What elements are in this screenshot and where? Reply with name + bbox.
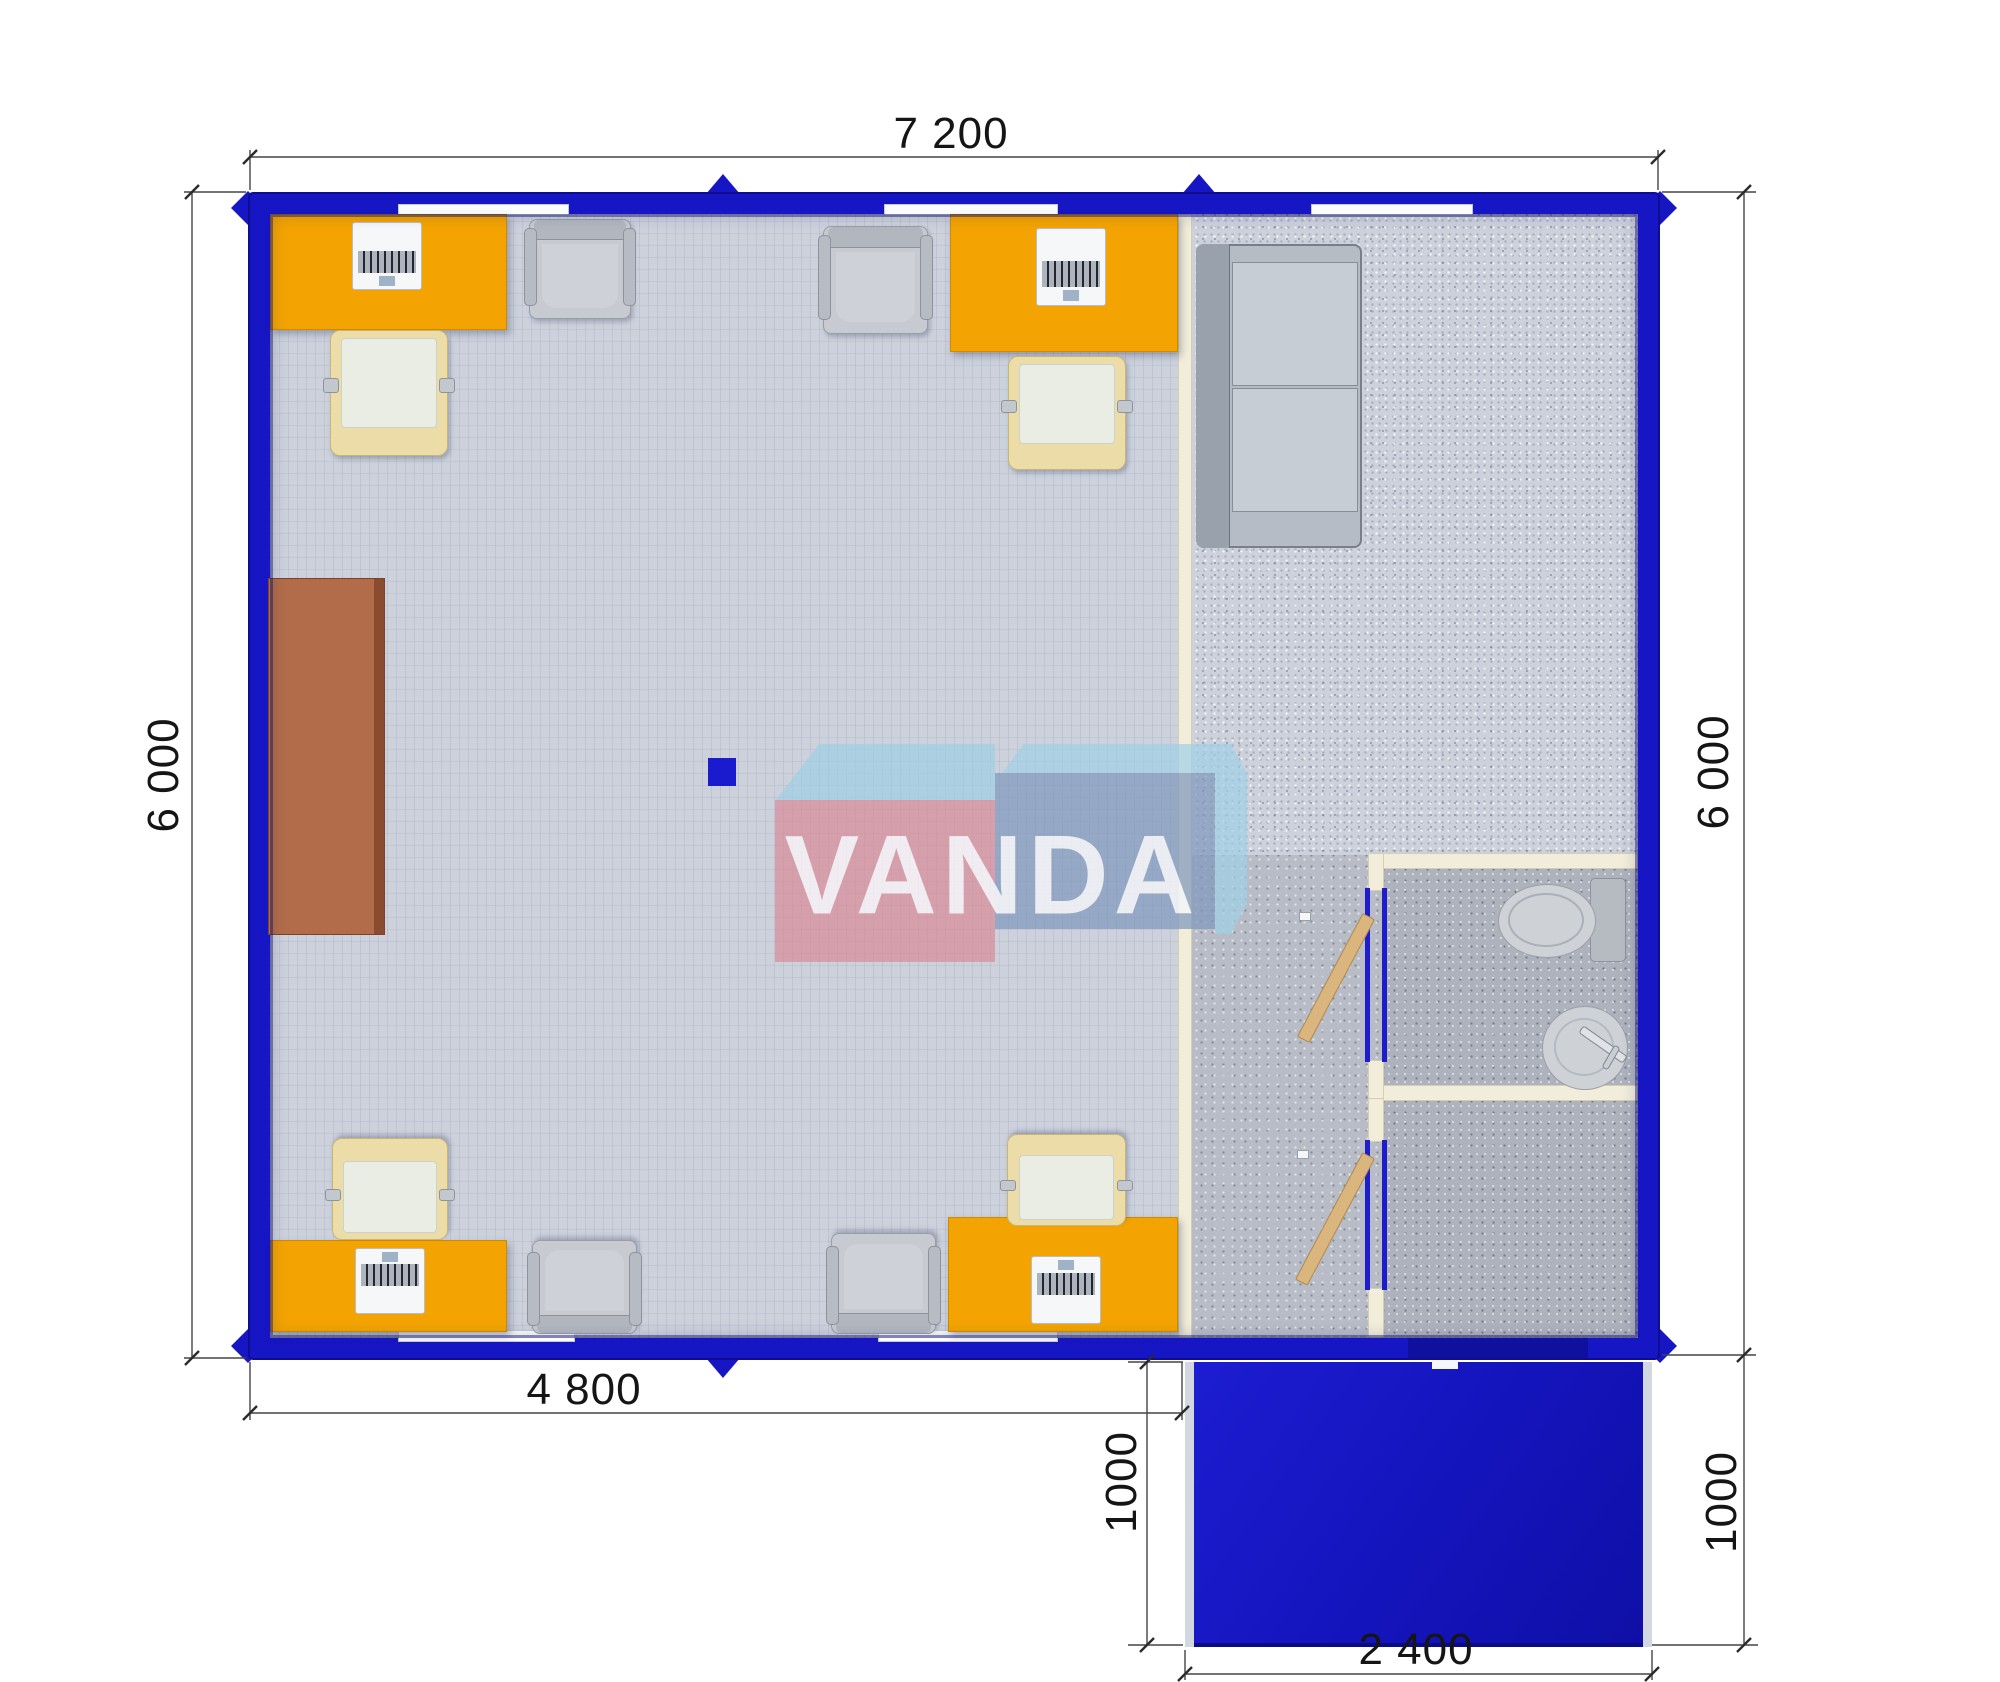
bathroom-door-frame-b [1382, 888, 1387, 1062]
armrest [1117, 400, 1133, 413]
sofa [1196, 244, 1362, 548]
chair-seat [844, 1244, 922, 1309]
dim-label-main-width: 4 800 [526, 1365, 641, 1415]
storage-cabinet [268, 578, 385, 935]
laptop-keyboard [361, 1264, 418, 1286]
sofa-backrest [1196, 244, 1230, 548]
dim-label-porch-depth-left: 1000 [1097, 1431, 1147, 1533]
sofa-cushion-2 [1232, 388, 1358, 512]
bathroom-wall-top [1368, 853, 1638, 869]
vestibule-wall-left-upper [1368, 1098, 1384, 1142]
armrest [439, 1189, 455, 1201]
armrest [524, 228, 537, 306]
dim-label-right-height: 6 000 [1689, 714, 1739, 829]
floor-plan-canvas: VANDA 7 200 [0, 0, 2000, 1682]
task-chair-1 [330, 330, 448, 456]
vestibule-door-frame-b [1382, 1140, 1387, 1290]
armrest [439, 378, 455, 393]
chair-seat [341, 338, 436, 427]
laptop-trackpad [382, 1252, 398, 1262]
chair-back [836, 1313, 931, 1333]
armrest [527, 1252, 540, 1326]
armrest [323, 378, 339, 393]
chair-seat [1019, 1155, 1115, 1220]
chair-seat [343, 1161, 437, 1233]
chair-seat [1019, 364, 1114, 445]
dim-label-porch-depth-right: 1000 [1697, 1451, 1747, 1553]
chair-seat [545, 1250, 623, 1311]
chair-back [828, 227, 923, 248]
armrest [629, 1252, 642, 1326]
task-chair-4 [1007, 1134, 1126, 1226]
module-joint-top-right-icon [1182, 174, 1216, 194]
chair-seat [836, 252, 914, 322]
vestibule-door-handle-icon [1297, 1150, 1309, 1159]
armrest [623, 228, 636, 306]
task-chair-3 [332, 1138, 448, 1240]
entry-door [1408, 1338, 1588, 1358]
armrest [1117, 1180, 1133, 1191]
guest-chair-1 [529, 219, 631, 319]
guest-chair-2 [823, 226, 928, 334]
armrest [818, 235, 831, 320]
sink-icon [1542, 1006, 1630, 1092]
chair-seat [542, 244, 618, 309]
floor-vestibule [1384, 1101, 1638, 1338]
column-marker [708, 758, 736, 786]
porch-edge-right [1643, 1362, 1652, 1647]
cabinet-edge [374, 579, 384, 934]
armrest [1001, 400, 1017, 413]
laptop-keyboard [1037, 1273, 1094, 1295]
toilet-rim [1508, 893, 1584, 947]
laptop-icon-4 [1031, 1256, 1101, 1324]
bathroom-wall-left-upper [1368, 853, 1384, 891]
toilet-icon [1498, 876, 1630, 966]
vestibule-wall-left-lower [1368, 1288, 1384, 1338]
laptop-icon-1 [352, 222, 422, 290]
task-chair-2 [1008, 356, 1126, 470]
partition-wall [1178, 214, 1192, 1338]
armrest [826, 1246, 839, 1325]
dim-label-total-width: 7 200 [893, 109, 1008, 159]
armrest [325, 1189, 341, 1201]
chair-back [534, 220, 626, 240]
laptop-trackpad [1063, 290, 1079, 301]
laptop-icon-3 [355, 1248, 425, 1314]
guest-chair-3 [532, 1240, 637, 1334]
laptop-keyboard [358, 251, 415, 273]
laptop-icon-2 [1036, 228, 1106, 306]
laptop-trackpad [379, 276, 395, 286]
entry-door-threshold [1432, 1360, 1458, 1369]
module-joint-bottom-icon [706, 1358, 740, 1378]
chair-back [537, 1315, 632, 1333]
dim-label-left-height: 6 000 [139, 717, 189, 832]
laptop-trackpad [1058, 1260, 1074, 1270]
entrance-porch [1185, 1362, 1652, 1647]
module-joint-top-left-icon [706, 174, 740, 194]
laptop-keyboard [1042, 261, 1099, 287]
bathroom-wall-left-lower [1368, 1060, 1384, 1101]
armrest [920, 235, 933, 320]
bathroom-door-handle-icon [1299, 912, 1311, 921]
guest-chair-4 [831, 1233, 936, 1334]
dim-label-porch-width: 2 400 [1358, 1625, 1473, 1675]
sofa-cushion-1 [1232, 262, 1358, 386]
window-top-3 [1311, 204, 1473, 216]
armrest [928, 1246, 941, 1325]
armrest [1000, 1180, 1016, 1191]
porch-edge-left [1185, 1362, 1194, 1647]
